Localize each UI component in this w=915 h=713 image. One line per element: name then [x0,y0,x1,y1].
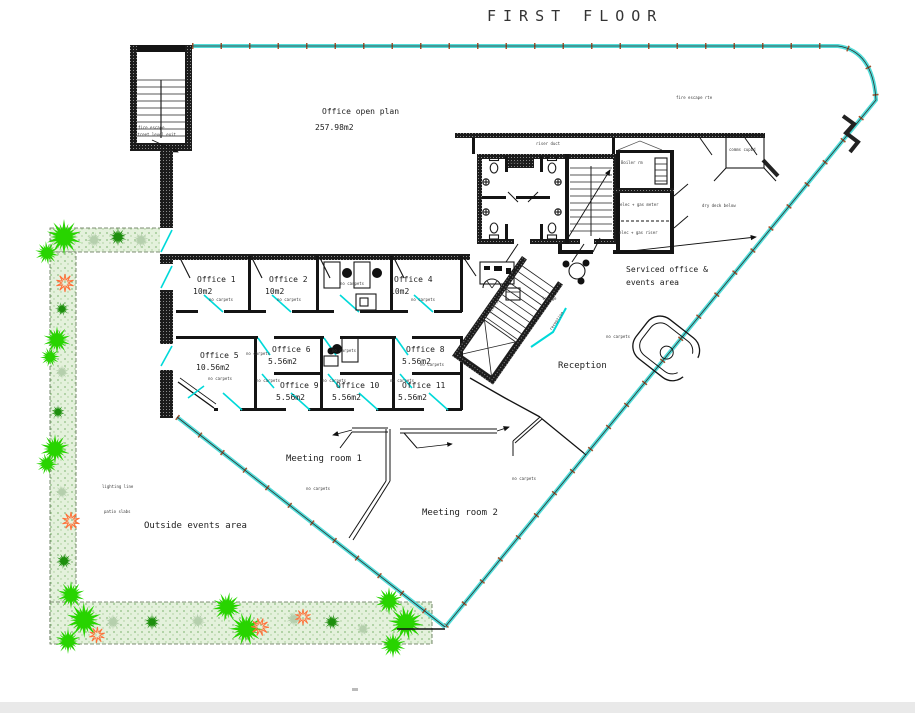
annotation-plant-2: elec + gas riser [619,231,658,235]
annotation-office5: no carpets [208,377,232,381]
meeting-room-1-label: Meeting room 1 [286,453,362,466]
page-title: FIRST FLOOR [487,7,663,25]
office-5-label: Office 510.56m2 [200,350,239,373]
annotation-office1: no carpets [209,298,233,302]
office-4-label: Office 410m2 [394,274,433,297]
annotation-riser: riser duct [536,142,560,146]
open-plan-area: 257.98m2 [315,122,354,134]
annotation-comms: comms cupbd [729,148,756,152]
annotation-office7: no carpets [332,349,356,353]
annotation-outside-2: patio slabs [104,510,131,514]
central-stair [568,166,612,238]
left-wall [160,150,173,418]
annotation-stair-1: fire escape [138,126,165,130]
annotation-lounge: lounge [542,297,556,301]
annotation-office9: no carpets [256,379,280,383]
annotation-stair-2: street level exit [135,133,176,137]
meeting-room-2-label: Meeting room 2 [422,507,498,520]
annotation-mr2: no carpets [512,477,536,481]
landscaping-strips [50,228,432,644]
annotation-plant-1: elec + gas meter [620,203,659,207]
floor-plan-drawing [0,0,915,713]
screen-mark [352,688,358,691]
annotation-office4: no carpets [411,298,435,302]
office-9-label: Office 95.56m2 [280,380,319,403]
annotation-office3: no carpets [340,282,364,286]
annotation-office11: no carpets [390,379,414,383]
annotation-office2: no carpets [277,298,301,302]
couch [626,310,710,391]
office-11-label: Office 115.56m2 [402,380,445,403]
annotation-outside-1: lighting line [102,485,133,489]
annotation-reception-note: no carpets [606,335,630,339]
office-10-label: Office 105.56m2 [336,380,379,403]
open-plan-label: Office open plan [322,106,399,118]
office-1-label: Office 110m2 [197,274,236,297]
annotation-office8: no carpets [420,363,444,367]
office-2-label: Office 210m2 [269,274,308,297]
annotation-basins: basins [510,161,524,165]
outside-events-label: Outside events area [144,520,247,533]
annotation-office6: no carpets [246,352,270,356]
toilets-block [455,133,765,262]
serviced-office-label-2: events area [626,277,679,289]
annotation-mr1: no carpets [306,487,330,491]
annotation-roof: fire escape rte [676,96,712,100]
wall-zigzag [843,116,858,152]
annotation-boiler: Boiler rm [621,161,643,165]
screen-edge [0,702,915,713]
serviced-office-label-1: Serviced office & [626,264,708,276]
meeting-room-walls [333,417,586,540]
annotation-dry-deck: dry deck below [702,204,736,208]
floor-plan: FIRST FLOOR Office open plan 257.98m2 Of… [0,0,915,713]
reception-stair [452,256,566,417]
office-6-label: Office 65.56m2 [272,344,311,367]
annotation-office10: no carpets [322,379,346,383]
reception-label: Reception [558,360,607,373]
